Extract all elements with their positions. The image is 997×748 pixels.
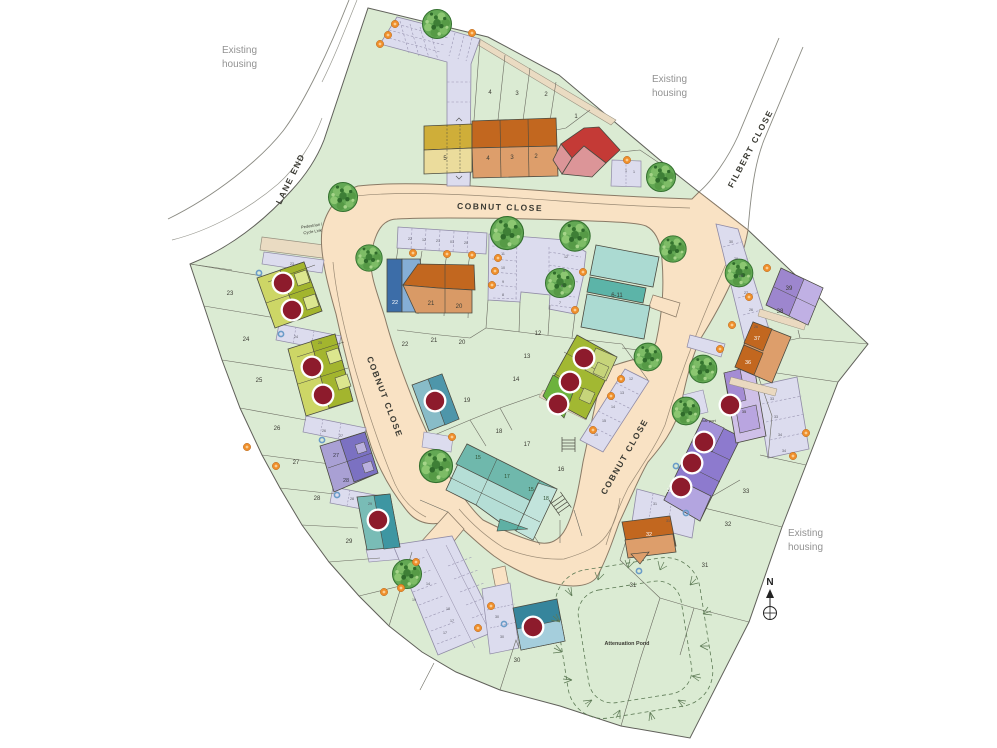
svg-text:34: 34 [778, 433, 782, 437]
svg-text:housing: housing [788, 542, 823, 553]
svg-text:12: 12 [422, 238, 426, 242]
svg-text:housing: housing [652, 88, 687, 99]
svg-text:20: 20 [456, 304, 463, 310]
svg-text:26: 26 [274, 426, 281, 432]
svg-text:31: 31 [630, 583, 637, 589]
svg-text:27: 27 [293, 460, 300, 466]
svg-text:26: 26 [754, 325, 758, 329]
svg-text:18: 18 [496, 429, 503, 435]
svg-text:32: 32 [646, 532, 652, 538]
svg-text:19: 19 [464, 398, 471, 404]
svg-text:15: 15 [475, 455, 481, 461]
svg-text:1: 1 [625, 169, 627, 173]
svg-text:33: 33 [743, 489, 750, 495]
svg-text:12: 12 [564, 255, 568, 259]
svg-text:31: 31 [666, 519, 670, 523]
svg-text:17: 17 [524, 442, 531, 448]
svg-text:29: 29 [734, 257, 738, 261]
svg-text:37: 37 [754, 336, 760, 342]
svg-text:car port: car port [702, 418, 716, 423]
svg-text:8: 8 [561, 284, 563, 288]
svg-text:29: 29 [368, 502, 372, 506]
svg-text:28: 28 [350, 497, 354, 501]
svg-text:Attenuation Pond: Attenuation Pond [605, 641, 650, 647]
svg-text:12: 12 [629, 377, 633, 381]
svg-text:14: 14 [426, 582, 430, 586]
svg-text:36: 36 [745, 360, 751, 366]
svg-text:38: 38 [777, 309, 784, 315]
svg-text:17: 17 [443, 631, 447, 635]
svg-text:15: 15 [528, 487, 534, 493]
svg-text:23: 23 [227, 291, 234, 297]
svg-text:17: 17 [504, 474, 510, 480]
svg-text:34: 34 [782, 449, 786, 453]
svg-text:26: 26 [322, 429, 326, 433]
svg-text:15: 15 [602, 419, 606, 423]
svg-text:19: 19 [412, 598, 416, 602]
svg-text:33: 33 [770, 397, 774, 401]
svg-text:28: 28 [739, 274, 743, 278]
svg-text:21: 21 [431, 338, 438, 344]
svg-text:11: 11 [501, 252, 505, 256]
svg-text:9: 9 [502, 280, 504, 284]
svg-text:39: 39 [786, 286, 793, 292]
svg-text:6-11: 6-11 [611, 293, 623, 299]
svg-text:7: 7 [559, 301, 561, 305]
svg-text:N: N [766, 577, 773, 588]
svg-text:9: 9 [563, 269, 565, 273]
svg-text:12: 12 [535, 331, 542, 337]
svg-text:14: 14 [611, 405, 615, 409]
svg-text:13: 13 [524, 354, 531, 360]
svg-text:8: 8 [502, 293, 504, 297]
svg-text:10: 10 [501, 266, 505, 270]
svg-text:22: 22 [408, 237, 412, 241]
svg-text:24: 24 [294, 335, 298, 339]
svg-text:30: 30 [500, 635, 504, 639]
svg-text:27: 27 [339, 434, 343, 438]
svg-text:18: 18 [543, 496, 549, 502]
svg-text:16: 16 [558, 467, 565, 473]
svg-text:Existing: Existing [788, 528, 823, 539]
svg-text:28: 28 [314, 496, 321, 502]
svg-text:13: 13 [620, 391, 624, 395]
svg-text:27: 27 [744, 291, 748, 295]
svg-text:Existing: Existing [222, 45, 257, 56]
svg-text:housing: housing [222, 59, 257, 70]
svg-text:22: 22 [402, 342, 409, 348]
svg-text:31: 31 [702, 563, 709, 569]
svg-text:Existing: Existing [652, 74, 687, 85]
svg-text:1: 1 [633, 170, 635, 174]
svg-text:20: 20 [459, 340, 466, 346]
svg-text:15: 15 [594, 433, 598, 437]
svg-text:20: 20 [464, 241, 468, 245]
svg-text:22: 22 [392, 300, 398, 306]
svg-text:26: 26 [749, 308, 753, 312]
svg-text:14: 14 [513, 377, 520, 383]
svg-text:28: 28 [343, 478, 349, 484]
svg-text:24: 24 [243, 337, 250, 343]
svg-text:30: 30 [514, 658, 521, 664]
svg-text:21: 21 [428, 301, 435, 307]
svg-text:35: 35 [742, 409, 747, 414]
svg-text:01: 01 [450, 240, 454, 244]
svg-text:33: 33 [774, 415, 778, 419]
svg-text:25: 25 [318, 341, 322, 345]
svg-text:21: 21 [436, 239, 440, 243]
svg-text:17: 17 [450, 619, 454, 623]
svg-text:27: 27 [333, 453, 339, 459]
svg-text:32: 32 [725, 522, 732, 528]
svg-text:30: 30 [495, 615, 499, 619]
svg-text:30: 30 [729, 240, 733, 244]
svg-text:18: 18 [446, 607, 450, 611]
svg-text:29: 29 [346, 539, 353, 545]
svg-text:23: 23 [290, 262, 294, 266]
svg-text:31: 31 [653, 502, 657, 506]
svg-text:25: 25 [256, 378, 263, 384]
